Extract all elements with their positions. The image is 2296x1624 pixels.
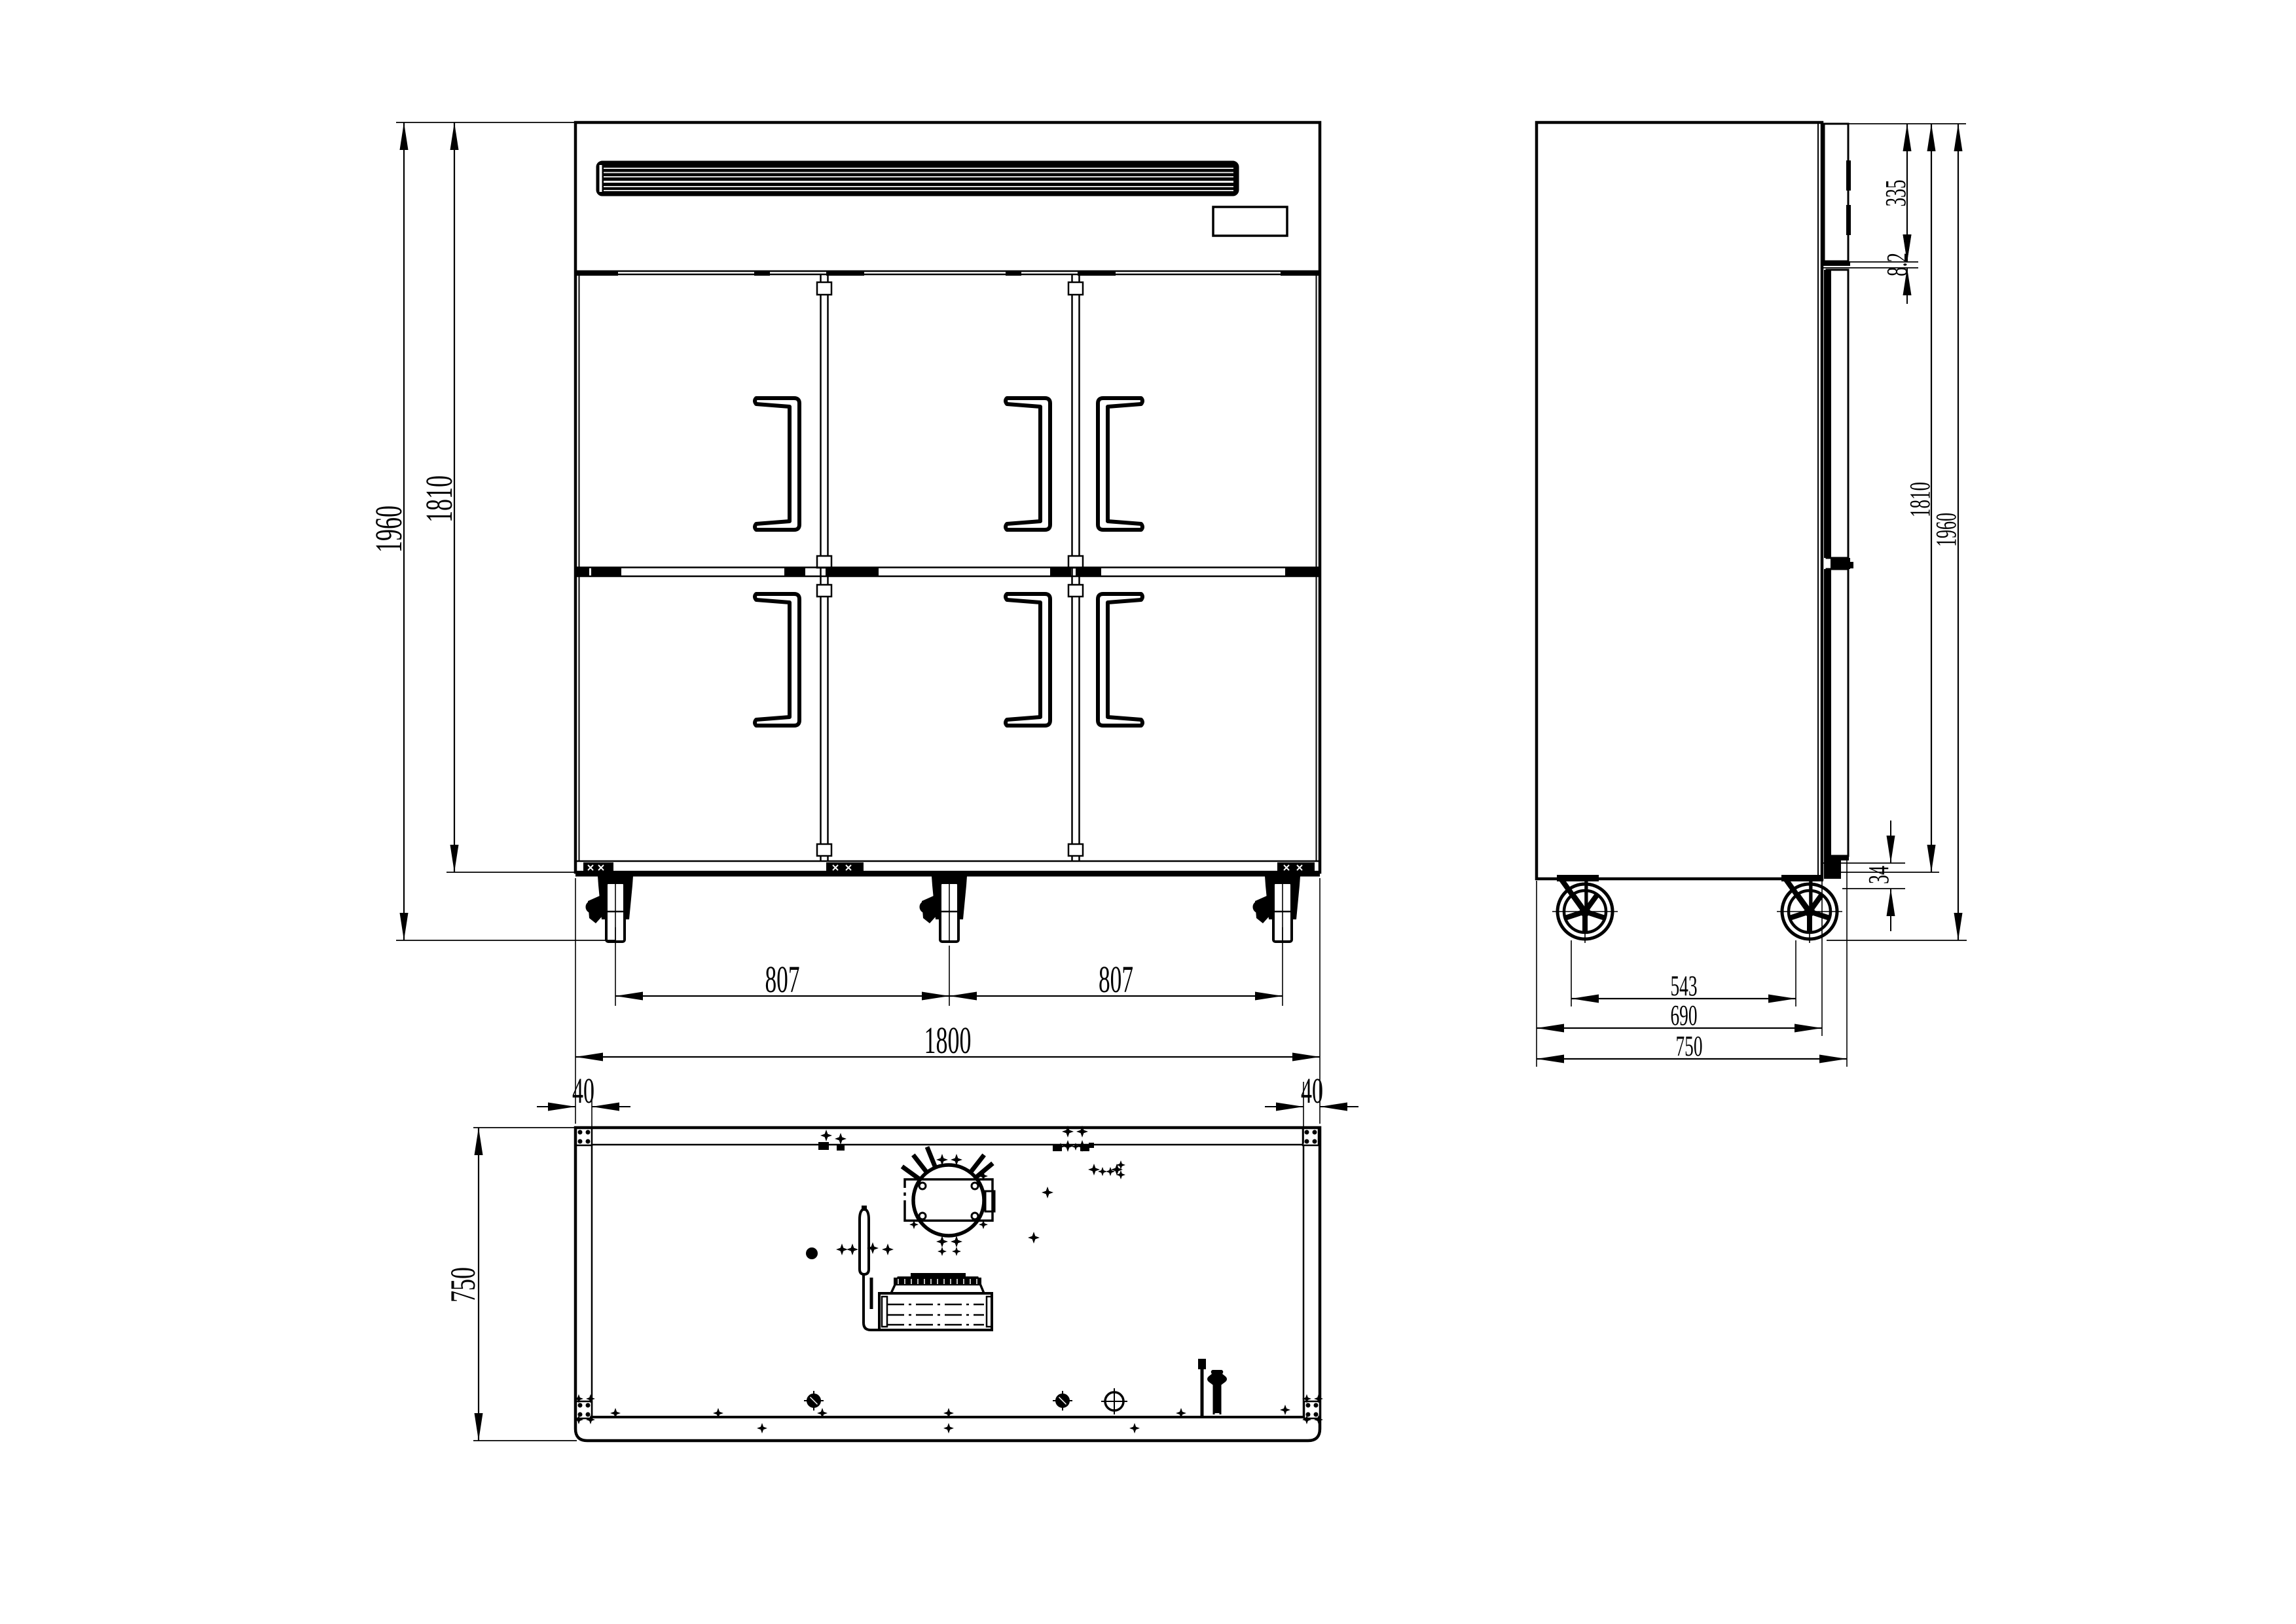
- svg-text:750: 750: [443, 1267, 483, 1302]
- svg-text:34: 34: [1863, 866, 1895, 884]
- svg-text:1960: 1960: [1930, 513, 1962, 547]
- svg-text:543: 543: [1671, 970, 1698, 1002]
- svg-text:1960: 1960: [367, 506, 410, 553]
- svg-text:335: 335: [1880, 180, 1912, 207]
- svg-text:807: 807: [765, 958, 800, 1001]
- svg-text:750: 750: [1676, 1030, 1703, 1062]
- svg-text:8.2: 8.2: [1881, 253, 1913, 276]
- svg-text:40: 40: [1301, 1071, 1323, 1111]
- svg-text:1810: 1810: [418, 475, 460, 523]
- svg-text:690: 690: [1671, 999, 1698, 1031]
- svg-text:40: 40: [572, 1071, 594, 1111]
- svg-text:1800: 1800: [924, 1019, 972, 1061]
- svg-text:807: 807: [1099, 958, 1133, 1001]
- svg-text:1810: 1810: [1904, 482, 1936, 517]
